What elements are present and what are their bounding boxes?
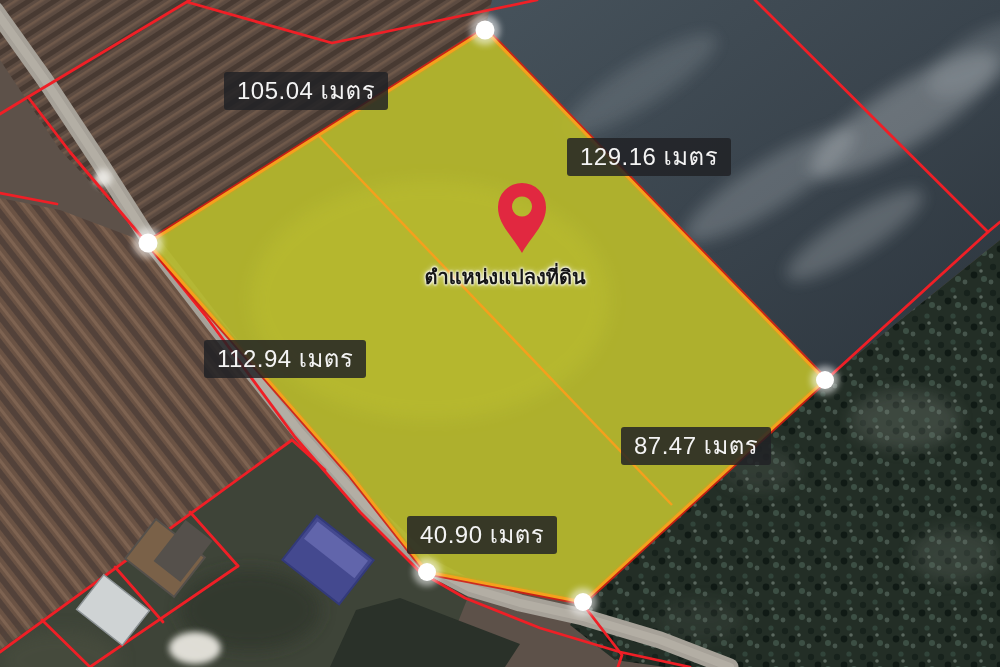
map-canvas[interactable]: 105.04 เมตร 129.16 เมตร 112.94 เมตร 87.4… bbox=[0, 0, 1000, 667]
measurement-label-west: 112.94 เมตร bbox=[204, 340, 366, 378]
measurement-label-north-west: 105.04 เมตร bbox=[224, 72, 388, 110]
pin-caption: ตำแหน่งแปลงที่ดิน bbox=[420, 261, 590, 293]
vertex-handle-bottom-left[interactable] bbox=[413, 558, 441, 586]
measurement-label-north-east: 129.16 เมตร bbox=[567, 138, 731, 176]
measurement-label-south: 40.90 เมตร bbox=[407, 516, 557, 554]
vertex-handle-bottom[interactable] bbox=[569, 588, 597, 616]
vertex-handle-top[interactable] bbox=[470, 15, 500, 45]
ground-white-patch bbox=[169, 632, 221, 664]
satellite-layer bbox=[0, 0, 1000, 667]
vertex-handle-right[interactable] bbox=[811, 366, 839, 394]
measurement-label-south-east: 87.47 เมตร bbox=[621, 427, 771, 465]
vertex-handle-left[interactable] bbox=[133, 228, 163, 258]
